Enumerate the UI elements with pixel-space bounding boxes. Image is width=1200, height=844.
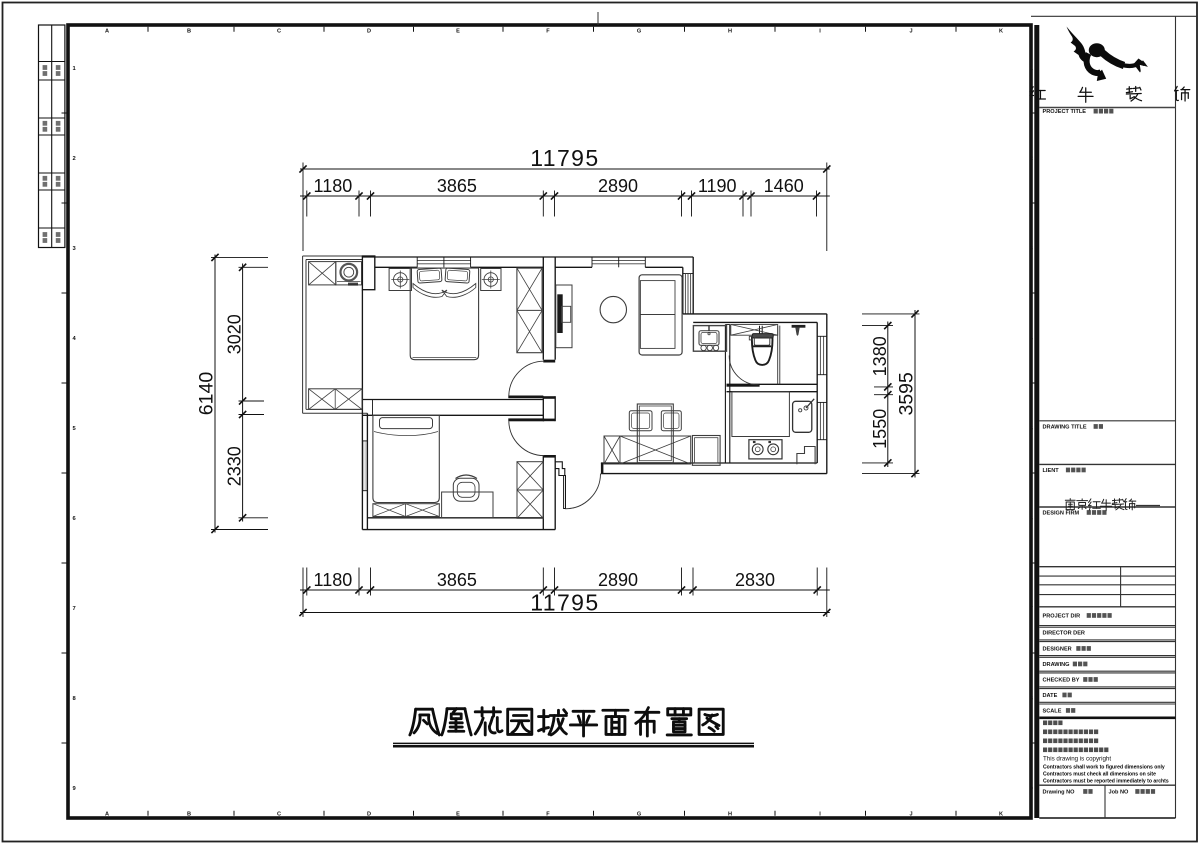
svg-text:E: E bbox=[456, 28, 460, 34]
svg-text:11795: 11795 bbox=[530, 590, 599, 616]
svg-text:1550: 1550 bbox=[870, 409, 890, 449]
svg-text:DRAWING TITLE: DRAWING TITLE bbox=[1043, 425, 1087, 431]
svg-text:C: C bbox=[277, 811, 281, 817]
svg-text:This drawing is copyright: This drawing is copyright bbox=[1043, 756, 1111, 763]
svg-text:2890: 2890 bbox=[598, 570, 638, 590]
svg-text:2: 2 bbox=[1030, 156, 1033, 162]
svg-text:DIRECTOR DER: DIRECTOR DER bbox=[1043, 631, 1085, 637]
svg-text:DESIGNER: DESIGNER bbox=[1043, 647, 1072, 653]
svg-text:PROJECT DIR: PROJECT DIR bbox=[1043, 614, 1081, 620]
svg-text:1180: 1180 bbox=[314, 570, 353, 590]
svg-text:G: G bbox=[637, 811, 641, 817]
svg-text:D: D bbox=[367, 811, 371, 817]
svg-text:H: H bbox=[728, 28, 732, 34]
svg-text:1380: 1380 bbox=[870, 336, 890, 376]
svg-text:2: 2 bbox=[73, 156, 76, 162]
svg-text:Drawing NO: Drawing NO bbox=[1043, 790, 1076, 796]
svg-text:K: K bbox=[999, 811, 1003, 817]
svg-text:CHECKED BY: CHECKED BY bbox=[1043, 678, 1080, 684]
svg-text:J: J bbox=[909, 28, 912, 34]
svg-text:1190: 1190 bbox=[698, 176, 737, 196]
svg-text:3020: 3020 bbox=[225, 314, 245, 354]
svg-text:Contractors shall work to figu: Contractors shall work to figured dimens… bbox=[1043, 764, 1165, 770]
svg-text:Job NO: Job NO bbox=[1109, 790, 1130, 796]
svg-text:F: F bbox=[546, 28, 550, 34]
svg-text:DRAWING: DRAWING bbox=[1043, 662, 1070, 668]
svg-text:J: J bbox=[909, 811, 912, 817]
svg-text:Contractors must check all dim: Contractors must check all dimensions on… bbox=[1043, 771, 1156, 777]
svg-text:K: K bbox=[999, 28, 1003, 34]
svg-text:A: A bbox=[105, 811, 109, 817]
svg-text:B: B bbox=[187, 811, 191, 817]
svg-text:H: H bbox=[728, 811, 732, 817]
svg-text:G: G bbox=[637, 28, 641, 34]
svg-text:2330: 2330 bbox=[225, 446, 245, 486]
svg-text:2890: 2890 bbox=[598, 176, 638, 196]
svg-text:11795: 11795 bbox=[530, 145, 599, 171]
svg-text:LIENT: LIENT bbox=[1043, 468, 1060, 474]
svg-text:DATE: DATE bbox=[1043, 693, 1058, 699]
svg-text:3865: 3865 bbox=[437, 570, 477, 590]
svg-text:PROJECT TITLE: PROJECT TITLE bbox=[1043, 109, 1087, 115]
svg-text:3865: 3865 bbox=[437, 176, 477, 196]
svg-text:SCALE: SCALE bbox=[1043, 709, 1062, 715]
svg-text:Contractors must be reported i: Contractors must be reported immediately… bbox=[1043, 778, 1169, 784]
svg-text:6140: 6140 bbox=[196, 372, 218, 416]
svg-text:F: F bbox=[546, 811, 550, 817]
svg-text:C: C bbox=[277, 28, 281, 34]
svg-text:1460: 1460 bbox=[764, 176, 804, 196]
svg-text:B: B bbox=[187, 28, 191, 34]
svg-text:2830: 2830 bbox=[735, 570, 775, 590]
svg-text:1180: 1180 bbox=[314, 176, 353, 196]
svg-text:D: D bbox=[367, 28, 371, 34]
svg-text:A: A bbox=[105, 28, 109, 34]
svg-text:7: 7 bbox=[1030, 606, 1033, 612]
svg-text:7: 7 bbox=[73, 606, 76, 612]
svg-text:E: E bbox=[456, 811, 460, 817]
svg-text:3595: 3595 bbox=[896, 372, 918, 416]
svg-text:DESIGN FIRM: DESIGN FIRM bbox=[1043, 511, 1080, 517]
